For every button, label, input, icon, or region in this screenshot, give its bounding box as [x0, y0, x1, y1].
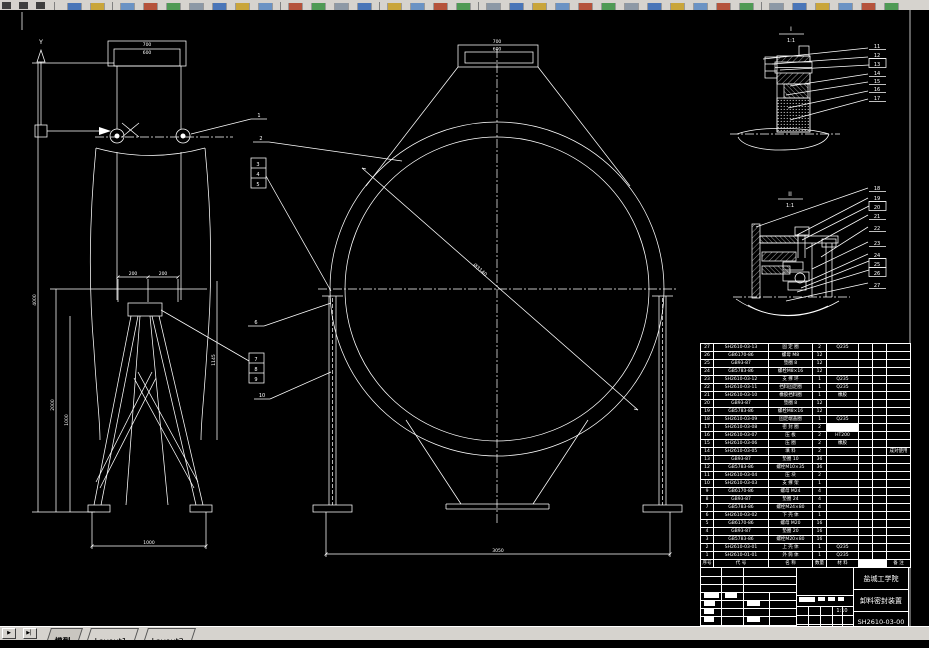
table-row: 14SH2610-03-05填 料2成对使用 [701, 448, 911, 456]
table-cell: 垫圈 24 [769, 496, 813, 504]
svg-text:200: 200 [129, 271, 138, 277]
table-cell [859, 464, 873, 472]
table-cell [887, 368, 911, 376]
table-cell: 螺栓M8×16 [769, 368, 813, 376]
table-cell: 1 [813, 512, 827, 520]
table-cell: 3 [701, 536, 714, 544]
svg-text:2000: 2000 [50, 399, 56, 411]
table-row: 20GB93-87垫圈 812 [701, 400, 911, 408]
table-cell: 螺栓M24×80 [769, 504, 813, 512]
svg-text:22: 22 [874, 226, 880, 232]
table-cell [887, 512, 911, 520]
svg-text:1: 1 [257, 113, 260, 119]
table-cell [859, 552, 873, 560]
table-cell: 螺母 M24 [769, 488, 813, 496]
table-cell [859, 344, 873, 352]
svg-text:Ø3140: Ø3140 [471, 262, 488, 278]
table-cell [887, 424, 911, 432]
table-cell: 垫圈 20 [769, 528, 813, 536]
parts-table: 27SH2610-03-13固 定 圈2Q23526GB6170-86螺母 M8… [700, 343, 911, 568]
toolbar-separator [379, 2, 380, 10]
table-row: 8GB93-87垫圈 244 [701, 496, 911, 504]
table-cell [887, 456, 911, 464]
table-cell: HT200 [827, 432, 859, 440]
table-cell: 15 [701, 440, 714, 448]
table-row: 7GB5783-86螺栓M24×804 [701, 504, 911, 512]
svg-text:700: 700 [143, 42, 152, 48]
table-cell [873, 432, 887, 440]
svg-text:13: 13 [874, 62, 880, 68]
table-cell [827, 472, 859, 480]
table-cell: SH2610-03-09 [714, 416, 769, 424]
table-cell [859, 416, 873, 424]
table-cell: 6 [701, 512, 714, 520]
table-row: 23SH2610-03-12支 撑 环1Q235 [701, 376, 911, 384]
table-cell [873, 512, 887, 520]
redacted-field [799, 597, 815, 602]
table-cell [859, 360, 873, 368]
table-cell [859, 432, 873, 440]
scale-value: 1:10 [832, 607, 852, 615]
left-elevation-view: 700 600 200 200 [32, 41, 233, 549]
parts-table-body: 27SH2610-03-13固 定 圈2Q23526GB6170-86螺母 M8… [701, 344, 911, 568]
table-cell [859, 496, 873, 504]
table-cell: 12 [813, 408, 827, 416]
table-cell: 12 [813, 368, 827, 376]
table-cell: GB93-87 [714, 496, 769, 504]
table-cell: 螺栓M8×16 [769, 408, 813, 416]
front-view: 700 600 Ø3140 3050 [313, 39, 682, 557]
table-cell: 成对使用 [887, 448, 911, 456]
table-cell: SH2610-03-07 [714, 432, 769, 440]
table-cell: 12 [813, 360, 827, 368]
table-cell: 挡料固定圈 [769, 384, 813, 392]
table-cell: 23 [701, 376, 714, 384]
table-cell: Q235 [827, 344, 859, 352]
table-cell: 7 [701, 504, 714, 512]
toolbar-separator [478, 2, 479, 10]
table-cell: 21 [701, 392, 714, 400]
table-cell [887, 384, 911, 392]
table-row: 10SH2610-03-03支 撑 架1 [701, 480, 911, 488]
redacted-field [704, 609, 714, 614]
table-cell: GB5783-86 [714, 368, 769, 376]
table-cell: 橡胶挡料圈 [769, 392, 813, 400]
table-cell: 36 [813, 456, 827, 464]
table-row: 19GB5783-86螺栓M8×1612 [701, 408, 911, 416]
drawing-area[interactable]: Y 700 600 [0, 10, 929, 626]
svg-text:15: 15 [874, 79, 880, 85]
table-cell: 2 [701, 544, 714, 552]
title-block-product: 卸料密封装置 [854, 595, 908, 607]
table-cell [873, 496, 887, 504]
table-cell: 16 [813, 520, 827, 528]
table-cell [827, 520, 859, 528]
table-cell [873, 488, 887, 496]
table-cell: 2 [813, 432, 827, 440]
table-cell: SH2610-01-01 [714, 552, 769, 560]
redacted-field [838, 597, 844, 601]
table-cell: 4 [701, 528, 714, 536]
table-cell [873, 480, 887, 488]
table-cell [827, 368, 859, 376]
table-cell [859, 520, 873, 528]
table-cell [873, 528, 887, 536]
toolbar-separator [280, 2, 281, 10]
table-cell: 27 [701, 344, 714, 352]
table-cell: 橡胶 [827, 392, 859, 400]
table-cell: 4 [813, 504, 827, 512]
detail-view-2: II 1:1 18 19 20 21 22 [733, 186, 886, 316]
table-cell: GB6170-86 [714, 488, 769, 496]
svg-text:5: 5 [256, 182, 259, 188]
layout-tabs: 模型 Layout1 Layout2 [46, 627, 194, 648]
table-cell [827, 360, 859, 368]
table-cell [827, 512, 859, 520]
svg-text:27: 27 [874, 283, 880, 289]
table-cell: 1 [813, 376, 827, 384]
table-cell: Q235 [827, 384, 859, 392]
table-cell [859, 472, 873, 480]
table-cell: 16 [813, 528, 827, 536]
redacted-field [725, 593, 737, 598]
model-tab[interactable]: 模型 [47, 628, 83, 640]
table-cell [859, 400, 873, 408]
table-cell [859, 488, 873, 496]
table-cell [887, 352, 911, 360]
table-cell [827, 528, 859, 536]
table-cell [827, 496, 859, 504]
table-cell [873, 544, 887, 552]
table-cell: Q235 [827, 544, 859, 552]
redacted-field [704, 593, 719, 598]
svg-text:3050: 3050 [492, 548, 504, 554]
table-cell [873, 448, 887, 456]
table-cell [887, 528, 911, 536]
table-cell: SH2610-03-01 [714, 544, 769, 552]
table-cell: 5 [701, 520, 714, 528]
redacted-field [704, 617, 714, 622]
table-cell [873, 536, 887, 544]
table-cell: 10 [701, 480, 714, 488]
table-cell [827, 504, 859, 512]
table-cell: 压 圈 [769, 440, 813, 448]
table-cell: 13 [701, 456, 714, 464]
svg-text:4: 4 [256, 172, 259, 178]
table-cell: 1 [813, 480, 827, 488]
table-cell [873, 352, 887, 360]
toolbar-icon[interactable] [36, 2, 45, 9]
table-cell [887, 360, 911, 368]
table-cell [859, 480, 873, 488]
svg-text:14: 14 [874, 71, 880, 77]
svg-text:I: I [790, 25, 792, 33]
table-cell [887, 504, 911, 512]
table-cell [827, 464, 859, 472]
table-cell [887, 464, 911, 472]
table-cell [873, 368, 887, 376]
table-cell [859, 408, 873, 416]
table-cell [873, 424, 887, 432]
table-cell [887, 520, 911, 528]
redacted-field [747, 617, 760, 622]
table-cell: 固 定 圈 [769, 344, 813, 352]
toolbar-icon[interactable] [19, 2, 28, 9]
toolbar-separator [761, 2, 762, 10]
table-cell: 12 [701, 464, 714, 472]
table-cell: Q235 [827, 552, 859, 560]
table-cell: 上 壳 体 [769, 544, 813, 552]
table-row: 22SH2610-03-11挡料固定圈1Q235 [701, 384, 911, 392]
table-cell [873, 520, 887, 528]
table-row: 2SH2610-03-01上 壳 体1Q235 [701, 544, 911, 552]
table-cell [887, 488, 911, 496]
table-cell [887, 480, 911, 488]
table-cell: 18 [701, 416, 714, 424]
table-cell: 支 撑 架 [769, 480, 813, 488]
table-cell [873, 360, 887, 368]
table-cell [887, 496, 911, 504]
table-cell: 4 [813, 488, 827, 496]
table-cell: 24 [701, 368, 714, 376]
table-cell: 2 [813, 472, 827, 480]
table-cell [859, 424, 873, 432]
table-cell: SH2610-03-05 [714, 448, 769, 456]
table-cell [859, 440, 873, 448]
table-cell: 垫圈 8 [769, 360, 813, 368]
table-cell [873, 440, 887, 448]
table-cell: 1 [813, 416, 827, 424]
table-cell [873, 344, 887, 352]
table-cell: 压 块 [769, 472, 813, 480]
table-cell: 16 [813, 536, 827, 544]
redacted-field [818, 597, 825, 601]
table-cell: GB5783-86 [714, 408, 769, 416]
svg-text:600: 600 [143, 50, 152, 56]
table-cell [827, 424, 859, 432]
table-cell [873, 400, 887, 408]
table-cell [827, 536, 859, 544]
table-cell [873, 376, 887, 384]
table-cell [859, 384, 873, 392]
table-row: 12GB5783-86螺栓M10×3536 [701, 464, 911, 472]
svg-text:10: 10 [259, 393, 265, 399]
table-cell: 螺母 M8 [769, 352, 813, 360]
table-cell [873, 392, 887, 400]
table-cell: 26 [701, 352, 714, 360]
table-cell: 36 [813, 464, 827, 472]
table-cell [887, 432, 911, 440]
svg-text:1000: 1000 [143, 540, 155, 546]
table-cell [859, 448, 873, 456]
table-cell [859, 504, 873, 512]
table-cell [873, 408, 887, 416]
table-cell [827, 408, 859, 416]
table-row: 1SH2610-01-01外 筒 体1Q235 [701, 552, 911, 560]
table-cell: GB5783-86 [714, 504, 769, 512]
table-cell [859, 352, 873, 360]
table-row: 18SH2610-03-09固定端盖圈1Q235 [701, 416, 911, 424]
table-cell [859, 544, 873, 552]
table-cell [859, 392, 873, 400]
table-cell: 1 [813, 552, 827, 560]
table-row: 13GB93-87垫圈 1036 [701, 456, 911, 464]
table-cell [887, 416, 911, 424]
table-cell [873, 384, 887, 392]
svg-text:1:1: 1:1 [787, 38, 795, 44]
svg-text:11: 11 [874, 44, 880, 50]
table-cell: 垫圈 8 [769, 400, 813, 408]
svg-text:26: 26 [874, 271, 880, 277]
svg-text:1000: 1000 [64, 414, 70, 426]
table-cell: 1 [701, 552, 714, 560]
table-cell: GB93-87 [714, 528, 769, 536]
svg-text:20: 20 [874, 205, 880, 211]
svg-text:600: 600 [493, 47, 502, 53]
table-cell: SH2610-03-03 [714, 480, 769, 488]
table-cell: 16 [701, 432, 714, 440]
table-cell: SH2610-03-08 [714, 424, 769, 432]
table-row: 16SH2610-03-07压 板2HT200 [701, 432, 911, 440]
table-cell: Q235 [827, 416, 859, 424]
table-cell: 4 [813, 496, 827, 504]
svg-text:16: 16 [874, 87, 880, 93]
table-cell [859, 376, 873, 384]
table-row: 25GB93-87垫圈 812 [701, 360, 911, 368]
table-cell [887, 400, 911, 408]
table-cell [887, 408, 911, 416]
table-row: 6SH2610-03-02下 壳 体1 [701, 512, 911, 520]
layout-tab-bar: ▶ ▶▏ 模型 Layout1 Layout2 [0, 626, 929, 640]
svg-text:25: 25 [874, 262, 880, 268]
table-cell [873, 552, 887, 560]
table-cell: Q235 [827, 376, 859, 384]
table-cell: 螺栓M20×80 [769, 536, 813, 544]
table-cell: 2 [813, 440, 827, 448]
table-cell: 12 [813, 352, 827, 360]
svg-text:19: 19 [874, 196, 880, 202]
table-cell: 螺栓M10×35 [769, 464, 813, 472]
tab-nav-last-button[interactable]: ▶▏ [23, 628, 37, 639]
table-cell: 14 [701, 448, 714, 456]
table-cell: 1 [813, 392, 827, 400]
table-cell: 压 板 [769, 432, 813, 440]
table-cell: GB93-87 [714, 400, 769, 408]
svg-text:4000: 4000 [32, 294, 38, 306]
svg-text:24: 24 [874, 253, 880, 259]
table-cell: 密 封 圈 [769, 424, 813, 432]
table-cell: GB5783-86 [714, 464, 769, 472]
table-cell: GB5783-86 [714, 536, 769, 544]
table-cell [859, 368, 873, 376]
table-cell [859, 536, 873, 544]
ucs-icon: Y [35, 38, 139, 137]
table-cell: 9 [701, 488, 714, 496]
toolbar-icon[interactable] [2, 2, 11, 9]
table-cell [827, 352, 859, 360]
table-cell [873, 472, 887, 480]
svg-text:200: 200 [159, 271, 168, 277]
table-cell [859, 456, 873, 464]
table-row: 11SH2610-03-04压 块2 [701, 472, 911, 480]
table-cell: 螺母 M20 [769, 520, 813, 528]
table-row: 9GB6170-86螺母 M244 [701, 488, 911, 496]
table-row: 3GB5783-86螺栓M20×8016 [701, 536, 911, 544]
table-cell: SH2610-03-12 [714, 376, 769, 384]
svg-text:6: 6 [254, 320, 257, 326]
detail-view-1: I 1:1 11 12 13 14 15 16 17 [730, 25, 886, 150]
svg-text:21: 21 [874, 214, 880, 220]
toolbar-separator [112, 2, 113, 10]
table-cell: 垫圈 10 [769, 456, 813, 464]
table-cell: 橡胶 [827, 440, 859, 448]
svg-text:12: 12 [874, 53, 880, 59]
layout1-tab[interactable]: Layout1 [87, 628, 139, 640]
svg-text:1145: 1145 [211, 354, 217, 366]
redacted-field [704, 601, 715, 606]
table-cell [887, 544, 911, 552]
svg-text:9: 9 [254, 377, 257, 383]
table-cell: 12 [813, 400, 827, 408]
tab-nav-next-button[interactable]: ▶ [2, 628, 16, 639]
table-row: 27SH2610-03-13固 定 圈2Q235 [701, 344, 911, 352]
toolbar-separator [54, 2, 55, 10]
table-cell: 支 撑 环 [769, 376, 813, 384]
svg-text:3: 3 [256, 162, 259, 168]
svg-text:17: 17 [874, 96, 880, 102]
table-cell: 22 [701, 384, 714, 392]
table-cell: GB93-87 [714, 456, 769, 464]
svg-text:Y: Y [38, 38, 43, 46]
table-row: 15SH2610-03-06压 圈2橡胶 [701, 440, 911, 448]
table-cell [827, 448, 859, 456]
table-row: 5GB6170-86螺母 M2016 [701, 520, 911, 528]
table-cell [859, 528, 873, 536]
table-cell [887, 472, 911, 480]
svg-text:23: 23 [874, 241, 880, 247]
table-cell: 19 [701, 408, 714, 416]
table-cell: 8 [701, 496, 714, 504]
balloon-leaders-left: 1 2 3 4 5 6 7 8 9 10 [161, 113, 402, 399]
table-cell: GB93-87 [714, 360, 769, 368]
table-cell: SH2610-03-11 [714, 384, 769, 392]
title-block: 1:10 1 1 盐城工学院 卸料密封装置 SH2610-03-00 [700, 567, 909, 635]
svg-text:8: 8 [254, 367, 257, 373]
table-cell: SH2610-03-10 [714, 392, 769, 400]
table-cell [873, 456, 887, 464]
svg-text:7: 7 [254, 357, 257, 363]
table-row: 17SH2610-03-08密 封 圈2 [701, 424, 911, 432]
table-cell [873, 464, 887, 472]
table-cell [873, 416, 887, 424]
table-cell: 25 [701, 360, 714, 368]
table-cell [887, 344, 911, 352]
table-cell [887, 440, 911, 448]
table-cell: 下 壳 体 [769, 512, 813, 520]
table-cell: GB6170-86 [714, 352, 769, 360]
table-cell [827, 400, 859, 408]
table-cell: SH2610-03-13 [714, 344, 769, 352]
table-row: 4GB93-87垫圈 2016 [701, 528, 911, 536]
table-cell [887, 392, 911, 400]
table-row: 21SH2610-03-10橡胶挡料圈1橡胶 [701, 392, 911, 400]
layout2-tab[interactable]: Layout2 [144, 628, 196, 640]
redacted-field [828, 597, 835, 601]
table-cell: SH2610-03-04 [714, 472, 769, 480]
table-cell [887, 376, 911, 384]
svg-text:700: 700 [493, 39, 502, 45]
table-cell: 填 料 [769, 448, 813, 456]
